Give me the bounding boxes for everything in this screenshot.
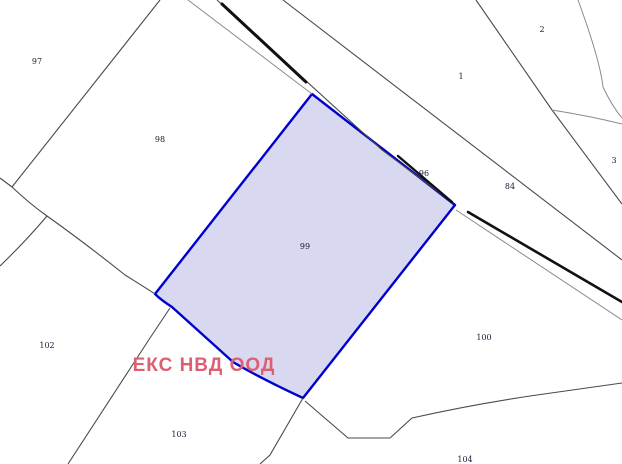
parcel-boundary-103-bottom: [260, 398, 303, 464]
cadastral-map[interactable]: 97 98 99 96 84 1 2 3 100 102 103 104 ЕКС…: [0, 0, 622, 464]
parcel-boundary-2-3: [552, 110, 622, 124]
parcel-number-label: 100: [476, 334, 491, 342]
parcel-number-label: 3: [611, 157, 616, 165]
parcel-number-label: 84: [505, 183, 515, 191]
road-line-bottom-right: [468, 212, 622, 302]
parcel-boundary-left-edge: [0, 178, 12, 187]
road-line-top: [222, 4, 306, 82]
parcel-number-label: 1: [458, 73, 463, 81]
parcel-number-label: 2: [539, 26, 544, 34]
parcel-number-label: 98: [155, 136, 165, 144]
parcel-number-label: 104: [457, 456, 472, 464]
parcel-number-label: 103: [171, 431, 186, 439]
watermark-text: ЕКС НВД ООД: [133, 355, 276, 377]
map-canvas[interactable]: [0, 0, 622, 464]
road-edge-upper-left: [188, 0, 312, 94]
parcel-boundary-104-top: [305, 383, 622, 438]
parcel-number-label: 96: [419, 170, 429, 178]
road-edge-lower: [456, 210, 622, 320]
parcel-number-label: 97: [32, 58, 42, 66]
selected-parcel-number-label: 99: [300, 243, 310, 251]
parcel-boundary-102-103: [68, 308, 170, 464]
parcel-boundary-1-2: [476, 0, 622, 204]
parcel-boundary-97-98: [12, 0, 160, 187]
parcel-boundary-2-right: [578, 0, 622, 118]
parcel-boundary-98-102: [12, 187, 155, 294]
parcel-boundary-102-left: [0, 216, 47, 266]
parcel-number-label: 102: [39, 342, 54, 350]
